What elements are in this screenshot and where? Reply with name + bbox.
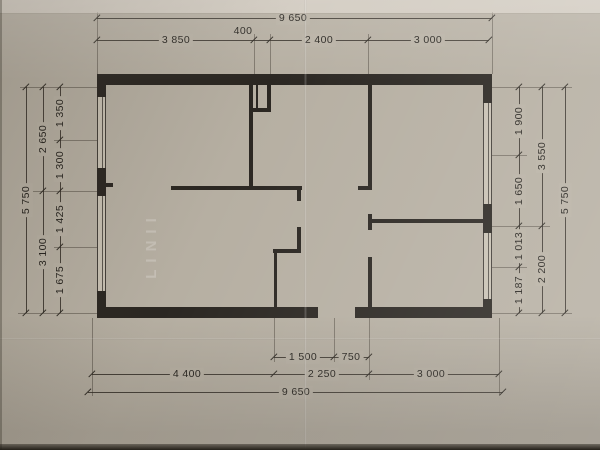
window-symbol — [97, 97, 106, 168]
wall-segment — [97, 74, 106, 97]
dimension-label: 3 550 — [536, 139, 549, 173]
wall-segment — [97, 307, 318, 318]
dimension-label: 1 650 — [513, 174, 526, 208]
dimension-label: 1 013 — [513, 229, 526, 263]
extension-line — [492, 155, 527, 156]
window-symbol — [483, 103, 492, 204]
wall-segment — [358, 186, 372, 190]
dimension-label: 1 187 — [513, 273, 526, 307]
wall-segment — [249, 85, 253, 190]
dimension-label: 1 675 — [54, 263, 67, 297]
window-symbol — [483, 233, 492, 299]
dimension-label: 1 350 — [54, 96, 67, 130]
dimension-label: 1 900 — [513, 104, 526, 138]
dimension-label: 1 425 — [54, 202, 67, 236]
extension-line — [97, 12, 98, 74]
dimension-tick — [499, 388, 506, 395]
extension-line — [492, 267, 527, 268]
wall-segment — [368, 219, 490, 223]
dimension-label: 5 750 — [559, 183, 572, 217]
wall-segment — [368, 85, 372, 186]
wall-segment — [97, 291, 106, 318]
dimension-label: 400 — [231, 25, 256, 38]
wall-segment — [97, 168, 106, 196]
photo-left-edge-shadow — [0, 0, 2, 450]
floor-plan-drawing: 9 6503 8504002 4003 0001 5007504 4002 25… — [0, 0, 600, 450]
wall-segment — [297, 190, 301, 201]
dimension-label: 750 — [339, 351, 364, 364]
wall-segment — [274, 253, 277, 309]
extension-line — [492, 87, 572, 88]
dimension-label: 2 250 — [305, 368, 339, 381]
dimension-label: 3 000 — [411, 34, 445, 47]
floor-plan-photo: 9 6503 8504002 4003 0001 5007504 4002 25… — [0, 0, 600, 450]
extension-line — [492, 313, 572, 314]
dimension-label: 5 750 — [20, 183, 33, 217]
dimension-label: 9 650 — [279, 386, 313, 399]
photo-bottom-edge — [0, 444, 600, 450]
extension-line — [492, 12, 493, 74]
dimension-label: 3 850 — [159, 34, 193, 47]
watermark-text: LINII — [101, 225, 201, 265]
extension-line — [92, 318, 93, 396]
paper-top-edge — [0, 0, 600, 14]
wall-segment — [483, 299, 492, 318]
wall-segment — [253, 108, 271, 112]
wall-segment — [483, 74, 492, 103]
paper-crease-horizontal — [0, 338, 600, 340]
dimension-label: 4 400 — [170, 368, 204, 381]
extension-line — [499, 318, 500, 396]
paper-crease-vertical — [304, 0, 307, 450]
wall-segment — [106, 183, 113, 187]
wall-segment — [355, 307, 492, 318]
dimension-label: 3 000 — [414, 368, 448, 381]
wall-segment — [256, 85, 258, 108]
dimension-label: 3 100 — [37, 235, 50, 269]
wall-segment — [171, 186, 302, 190]
wall-segment — [368, 257, 372, 309]
dimension-label: 2 650 — [37, 122, 50, 156]
dimension-label: 1 300 — [54, 148, 67, 182]
wall-segment — [97, 74, 492, 85]
dimension-label: 1 500 — [286, 351, 320, 364]
dimension-label: 2 400 — [302, 34, 336, 47]
wall-segment — [273, 249, 301, 253]
dimension-label: 2 200 — [536, 252, 549, 286]
